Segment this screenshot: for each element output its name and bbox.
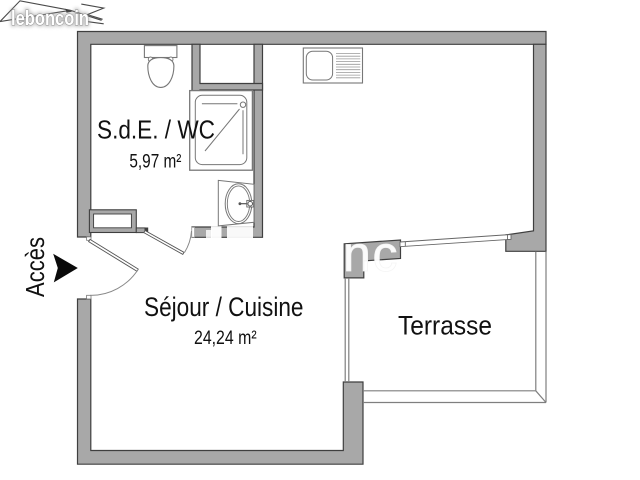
svg-text:Séjour / Cuisine: Séjour / Cuisine bbox=[144, 292, 304, 322]
svg-text:S.d.E. / WC: S.d.E. / WC bbox=[97, 115, 215, 145]
svg-text:5,97 m²: 5,97 m² bbox=[129, 151, 181, 173]
svg-text:Terrasse: Terrasse bbox=[398, 311, 492, 341]
svg-text:c: c bbox=[373, 226, 398, 282]
svg-text:leboncoin: leboncoin bbox=[11, 8, 89, 30]
svg-text:Accès: Accès bbox=[20, 237, 50, 297]
svg-text:24,24 m²: 24,24 m² bbox=[194, 327, 257, 349]
svg-text:n: n bbox=[343, 226, 371, 282]
